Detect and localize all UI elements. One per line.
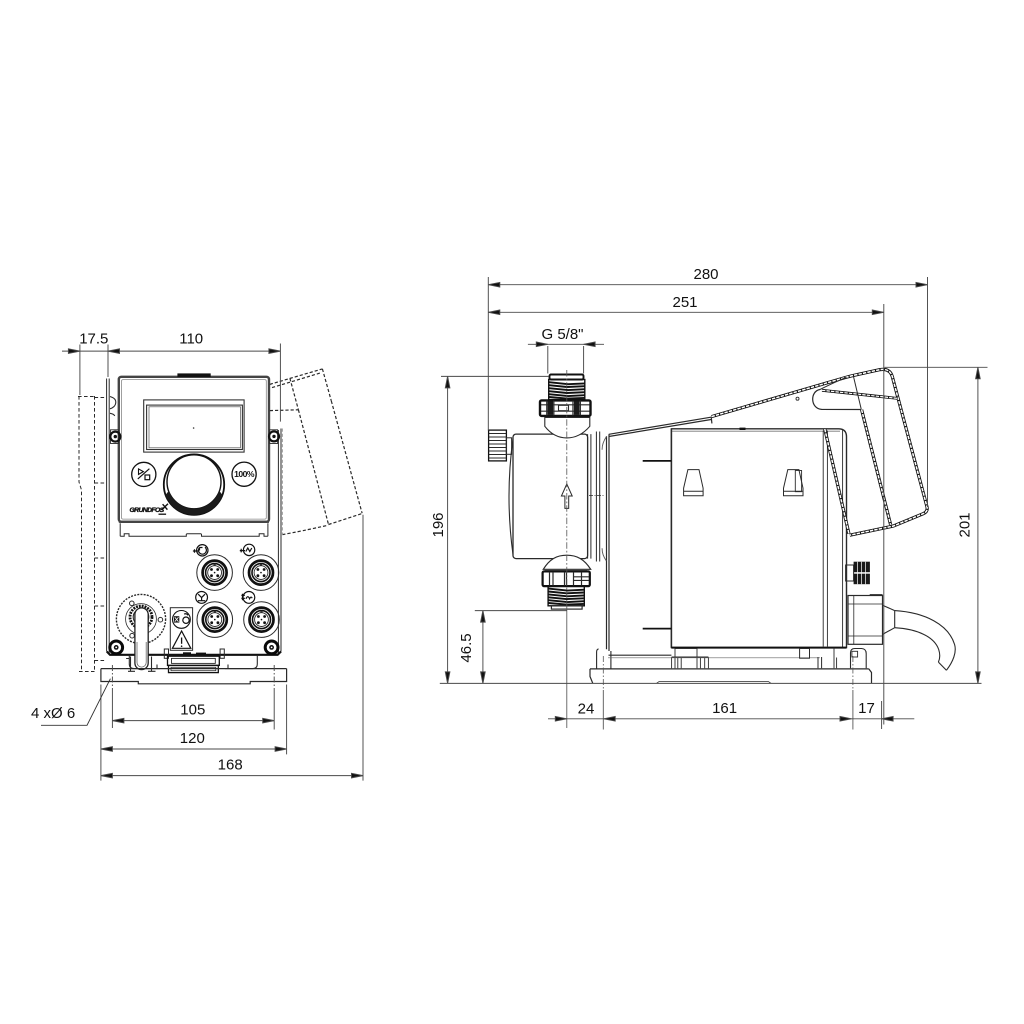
svg-text:G 5/8": G 5/8"	[541, 326, 583, 343]
svg-text:110: 110	[179, 331, 203, 348]
svg-text:46.5: 46.5	[458, 633, 475, 662]
svg-text:GRUNDFOS: GRUNDFOS	[130, 507, 165, 514]
svg-text:4 xØ 6: 4 xØ 6	[31, 705, 75, 722]
svg-text:201: 201	[957, 512, 974, 537]
svg-text:17.5: 17.5	[79, 331, 108, 348]
svg-text:24: 24	[578, 701, 595, 718]
svg-text:168: 168	[218, 757, 243, 774]
svg-text:161: 161	[712, 700, 737, 717]
svg-text:196: 196	[430, 512, 447, 537]
svg-text:100%: 100%	[234, 469, 255, 479]
svg-text:280: 280	[693, 266, 718, 283]
svg-text:251: 251	[672, 294, 697, 311]
svg-text:17: 17	[858, 700, 875, 717]
svg-text:105: 105	[180, 702, 205, 719]
svg-text:120: 120	[180, 730, 205, 747]
